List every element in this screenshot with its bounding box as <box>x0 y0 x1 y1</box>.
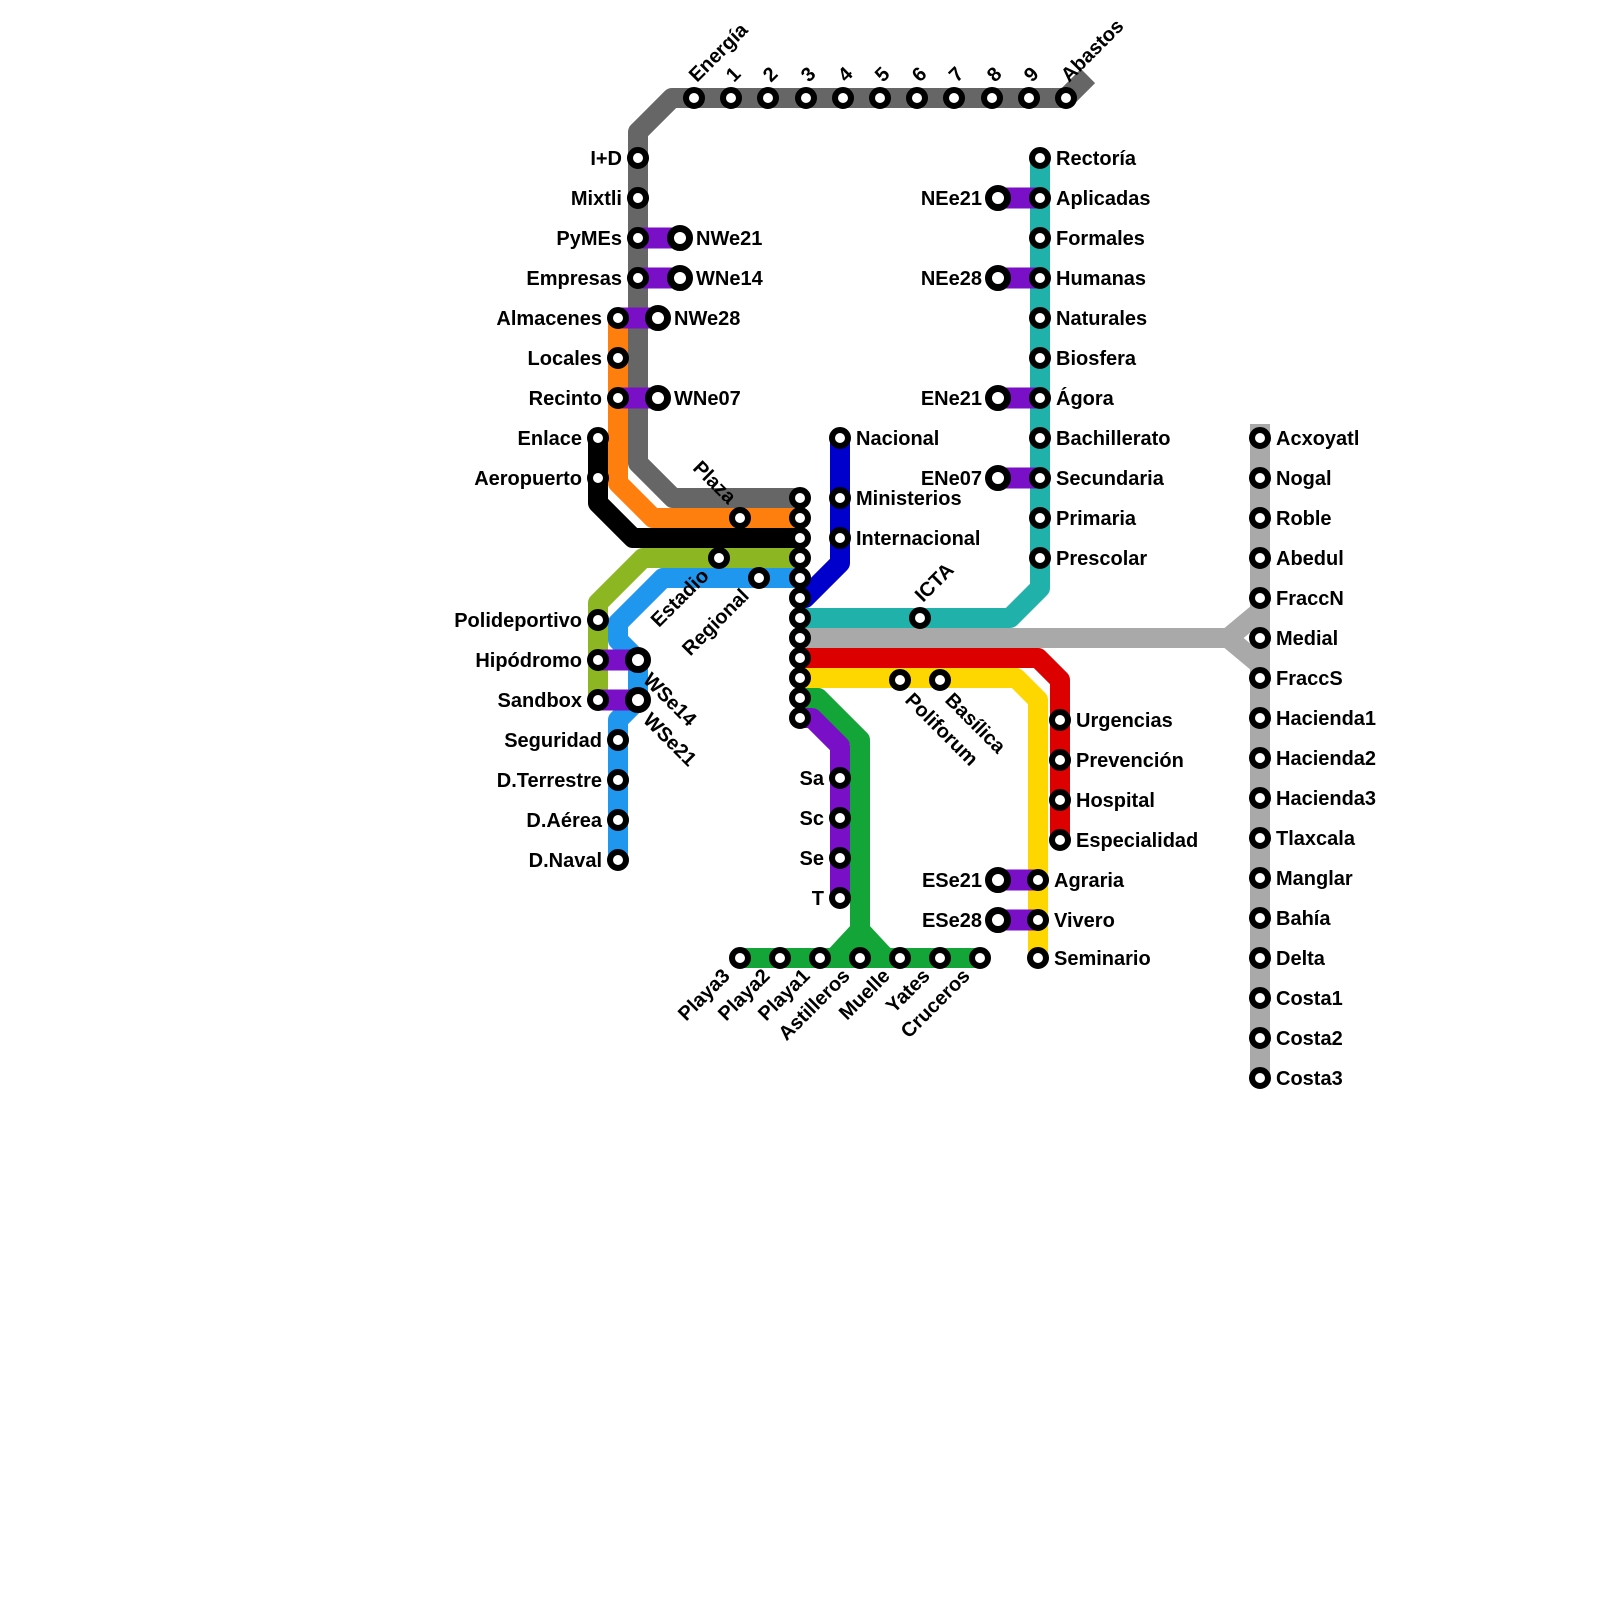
transfer-station-marker <box>671 229 690 248</box>
station-agora: Ágora <box>1032 387 1115 410</box>
station-marker <box>1252 670 1268 686</box>
station-marker <box>1252 830 1268 846</box>
station-marker <box>1032 470 1048 486</box>
station-marker <box>751 570 767 586</box>
station-nogal: Nogal <box>1252 468 1332 490</box>
station-marker <box>1252 950 1268 966</box>
station-label: Acxoyatl <box>1276 428 1359 450</box>
station-label: Aplicadas <box>1056 188 1150 210</box>
station-label: Empresas <box>526 268 622 290</box>
station-marker <box>892 672 908 688</box>
station-aeropuerto: Aeropuerto <box>474 468 606 490</box>
station-marker <box>1032 310 1048 326</box>
station-marker <box>1252 1070 1268 1086</box>
transfer-station-marker <box>649 309 668 328</box>
station-label: 5 <box>871 63 894 86</box>
station-ene21: ENe21 <box>921 388 1008 410</box>
station-label: 3 <box>797 63 820 86</box>
station-label: Bachillerato <box>1056 428 1170 450</box>
station-marker <box>732 950 748 966</box>
station-enlace: Enlace <box>518 428 606 450</box>
interchange-node <box>792 530 808 546</box>
station-marker <box>590 652 606 668</box>
station-marker <box>1032 230 1048 246</box>
station-label: Roble <box>1276 508 1332 530</box>
station-marker <box>1252 470 1268 486</box>
station-label: Seguridad <box>504 730 602 752</box>
station-ese28: ESe28 <box>922 910 1008 932</box>
station-wne07: WNe07 <box>649 388 741 410</box>
station-marker <box>812 950 828 966</box>
station-marker <box>760 90 776 106</box>
station-marker <box>590 430 606 446</box>
station-label: Agraria <box>1054 870 1125 892</box>
station-label: Nogal <box>1276 468 1332 490</box>
station-label: Secundaria <box>1056 468 1165 490</box>
station-marker <box>1021 90 1037 106</box>
station-marker <box>1252 710 1268 726</box>
transfer-station-marker <box>989 871 1008 890</box>
station-bachillerato: Bachillerato <box>1032 428 1170 450</box>
station-label: Abastos <box>1057 15 1128 86</box>
station-label: Manglar <box>1276 868 1353 890</box>
station-label: Rectoría <box>1056 148 1137 170</box>
station-label: ENe21 <box>921 388 982 410</box>
station-label: D.Aérea <box>526 810 602 832</box>
station-label: Humanas <box>1056 268 1146 290</box>
station-label: Primaria <box>1056 508 1137 530</box>
station-marker <box>1252 630 1268 646</box>
station-label: Ágora <box>1056 387 1115 410</box>
station-marker <box>1052 832 1068 848</box>
interchange-node <box>792 550 808 566</box>
station-label: 1 <box>722 63 745 86</box>
station-marker <box>590 612 606 628</box>
station-marker <box>912 610 928 626</box>
station-marker <box>1032 430 1048 446</box>
station-label: D.Naval <box>529 850 602 872</box>
station-pymes: PyMEs <box>556 228 646 250</box>
station-marker <box>610 310 626 326</box>
station-label: PyMEs <box>556 228 622 250</box>
station-label: Abedul <box>1276 548 1344 570</box>
station-hacienda3: Hacienda3 <box>1252 788 1376 810</box>
interchange-node <box>792 630 808 646</box>
station-marker <box>732 510 748 526</box>
transfer-station-marker <box>989 469 1008 488</box>
station-label: T <box>812 888 824 910</box>
station-costa1: Costa1 <box>1252 988 1343 1010</box>
station-label: Se <box>800 848 824 870</box>
station-marker <box>1032 390 1048 406</box>
station-marker <box>1032 350 1048 366</box>
station-label: Formales <box>1056 228 1145 250</box>
station-label: WNe14 <box>696 268 764 290</box>
transfer-station-marker <box>629 691 648 710</box>
station-internacional: Internacional <box>832 528 980 550</box>
station-costa2: Costa2 <box>1252 1028 1343 1050</box>
station-label: Biosfera <box>1056 348 1137 370</box>
station-label: Enlace <box>518 428 582 450</box>
stations: Energía123456789AbastosI+DMixtliPyMEsEmp… <box>454 15 1376 1090</box>
station-delta: Delta <box>1252 948 1326 970</box>
station-marker <box>1052 792 1068 808</box>
station-marker <box>1252 1030 1268 1046</box>
station-mixtli: Mixtli <box>571 188 646 210</box>
station-marker <box>610 852 626 868</box>
station-label: D.Terrestre <box>497 770 602 792</box>
station-label: 6 <box>908 63 931 86</box>
station-label: ENe07 <box>921 468 982 490</box>
station-marker <box>630 230 646 246</box>
station-label: Locales <box>528 348 602 370</box>
station-sa: Sa <box>800 768 848 790</box>
station-sandbox: Sandbox <box>498 690 606 712</box>
station-marker <box>1252 990 1268 1006</box>
station-marker <box>1252 590 1268 606</box>
station-marker <box>798 90 814 106</box>
station-marker <box>1032 510 1048 526</box>
station-label: Urgencias <box>1076 710 1173 732</box>
station-marker <box>832 810 848 826</box>
station-label: Prescolar <box>1056 548 1147 570</box>
station-marker <box>1052 712 1068 728</box>
station-label: Internacional <box>856 528 980 550</box>
transfer-station-marker <box>671 269 690 288</box>
station-label: NWe21 <box>696 228 762 250</box>
station-label: 4 <box>834 62 858 86</box>
station-label: 2 <box>759 63 782 86</box>
station-medial: Medial <box>1252 628 1338 650</box>
station-recinto: Recinto <box>529 388 626 410</box>
station-label: I+D <box>590 148 622 170</box>
station-label: Especialidad <box>1076 830 1198 852</box>
station-wne14: WNe14 <box>671 268 764 290</box>
station-marker <box>1032 190 1048 206</box>
station-marker <box>630 190 646 206</box>
station-label: Seminario <box>1054 948 1151 970</box>
station-marker <box>1032 150 1048 166</box>
station-label: WNe07 <box>674 388 741 410</box>
station-marker <box>610 390 626 406</box>
station-label: Delta <box>1276 948 1326 970</box>
station-label: ICTA <box>911 559 959 607</box>
station-marker <box>630 270 646 286</box>
station-label: Costa2 <box>1276 1028 1343 1050</box>
station-marker <box>972 950 988 966</box>
station-label: Bahía <box>1276 908 1331 930</box>
station-marker <box>686 90 702 106</box>
station-label: Vivero <box>1054 910 1115 932</box>
transit-map: Energía123456789AbastosI+DMixtliPyMEsEmp… <box>0 0 1600 1600</box>
station-fraccs: FraccS <box>1252 668 1343 690</box>
station-label: FraccN <box>1276 588 1344 610</box>
interchange-node <box>792 670 808 686</box>
station-marker <box>590 692 606 708</box>
station-marker <box>630 150 646 166</box>
interchange-node <box>792 510 808 526</box>
station-label: Medial <box>1276 628 1338 650</box>
station-costa3: Costa3 <box>1252 1068 1343 1090</box>
station-marker <box>835 90 851 106</box>
station-label: Hospital <box>1076 790 1155 812</box>
station-bahia: Bahía <box>1252 908 1331 930</box>
station-label: Tlaxcala <box>1276 828 1356 850</box>
station-marker <box>832 490 848 506</box>
station-ene07: ENe07 <box>921 468 1008 490</box>
station-secundaria: Secundaria <box>1032 468 1165 490</box>
station-marker <box>1030 912 1046 928</box>
transit-map-canvas: Energía123456789AbastosI+DMixtliPyMEsEmp… <box>0 0 1600 1600</box>
station-marker <box>610 812 626 828</box>
station-marker <box>984 90 1000 106</box>
station-label: Prevención <box>1076 750 1184 772</box>
station-urgencias: Urgencias <box>1052 710 1173 732</box>
station-prevencion: Prevención <box>1052 750 1184 772</box>
station-seminario: Seminario <box>1030 948 1151 970</box>
station-label: 8 <box>983 63 1006 86</box>
station-label: NEe21 <box>921 188 982 210</box>
station-especialidad: Especialidad <box>1052 830 1198 852</box>
station-label: 7 <box>945 63 968 86</box>
station-label: FraccS <box>1276 668 1343 690</box>
station-hipodromo: Hipódromo <box>475 650 606 672</box>
transfer-station-marker <box>989 269 1008 288</box>
station-label: Costa3 <box>1276 1068 1343 1090</box>
station-t: T <box>812 888 848 910</box>
station-d-terrestre: D.Terrestre <box>497 770 626 792</box>
station-marker <box>610 772 626 788</box>
station-se: Se <box>800 848 848 870</box>
station-marker <box>892 950 908 966</box>
station-agraria: Agraria <box>1030 870 1125 892</box>
station-marker <box>832 430 848 446</box>
station-abedul: Abedul <box>1252 548 1344 570</box>
station-marker <box>1032 270 1048 286</box>
station-marker <box>1252 510 1268 526</box>
station-marker <box>946 90 962 106</box>
interchange-node <box>792 650 808 666</box>
station-marker <box>832 890 848 906</box>
station-marker <box>1030 950 1046 966</box>
station-label: Sa <box>800 768 825 790</box>
station-nwe21: NWe21 <box>671 228 763 250</box>
station-marker <box>1252 750 1268 766</box>
station-i-d: I+D <box>590 148 646 170</box>
station-hacienda1: Hacienda1 <box>1252 708 1376 730</box>
transfer-station-marker <box>989 911 1008 930</box>
station-fraccn: FraccN <box>1252 588 1344 610</box>
station-label: ESe21 <box>922 870 982 892</box>
station-label: NWe28 <box>674 308 740 330</box>
transfer-station-marker <box>629 651 648 670</box>
station-label: NEe28 <box>921 268 982 290</box>
station-label: Polideportivo <box>454 610 582 632</box>
station-label: Hacienda3 <box>1276 788 1376 810</box>
station-label: Costa1 <box>1276 988 1343 1010</box>
station-label: Naturales <box>1056 308 1147 330</box>
station-hacienda2: Hacienda2 <box>1252 748 1376 770</box>
station-marker <box>711 550 727 566</box>
station-marker <box>932 950 948 966</box>
station-vivero: Vivero <box>1030 910 1115 932</box>
transfer-station-marker <box>649 389 668 408</box>
station-marker <box>723 90 739 106</box>
station-label: Hacienda1 <box>1276 708 1376 730</box>
station-sc: Sc <box>800 808 848 830</box>
station-polideportivo: Polideportivo <box>454 610 606 632</box>
station-marker <box>832 770 848 786</box>
station-label: 9 <box>1020 63 1043 86</box>
interchange-node <box>792 690 808 706</box>
interchange-node <box>792 570 808 586</box>
station-marker <box>1030 872 1046 888</box>
station-label: ESe28 <box>922 910 982 932</box>
station-marker <box>832 530 848 546</box>
station-almacenes: Almacenes <box>496 308 626 330</box>
station-label: Hacienda2 <box>1276 748 1376 770</box>
station-marker <box>590 470 606 486</box>
station-marker <box>932 672 948 688</box>
station-label: Hipódromo <box>475 650 582 672</box>
station-label: Recinto <box>529 388 602 410</box>
interchange-node <box>792 710 808 726</box>
station-marker <box>1252 550 1268 566</box>
station-marker <box>872 90 888 106</box>
station-nee28: NEe28 <box>921 268 1008 290</box>
station-marker <box>1252 870 1268 886</box>
station-marker <box>832 850 848 866</box>
station-ministerios: Ministerios <box>832 488 962 510</box>
transfer-station-marker <box>989 189 1008 208</box>
station-marker <box>610 732 626 748</box>
station-nee21: NEe21 <box>921 188 1008 210</box>
station-marker <box>1252 790 1268 806</box>
station-label: Mixtli <box>571 188 622 210</box>
station-marker <box>772 950 788 966</box>
station-ese21: ESe21 <box>922 870 1008 892</box>
station-label: Nacional <box>856 428 939 450</box>
station-marker <box>1032 550 1048 566</box>
station-marker <box>1058 90 1074 106</box>
station-marker <box>852 950 868 966</box>
station-abastos: Abastos <box>1057 15 1128 106</box>
station-marker <box>610 350 626 366</box>
station-label: Almacenes <box>496 308 602 330</box>
station-label: Sc <box>800 808 824 830</box>
station-d-naval: D.Naval <box>529 850 626 872</box>
station-marker <box>1052 752 1068 768</box>
transfer-station-marker <box>989 389 1008 408</box>
station-marker <box>1252 430 1268 446</box>
station-label: Ministerios <box>856 488 962 510</box>
interchange-node <box>792 490 808 506</box>
station-nwe28: NWe28 <box>649 308 741 330</box>
station-seguridad: Seguridad <box>504 730 626 752</box>
interchange-node <box>792 590 808 606</box>
station-label: Aeropuerto <box>474 468 582 490</box>
interchange-node <box>792 610 808 626</box>
station-marker <box>909 90 925 106</box>
station-roble: Roble <box>1252 508 1332 530</box>
station-label: Sandbox <box>498 690 582 712</box>
station-marker <box>1252 910 1268 926</box>
